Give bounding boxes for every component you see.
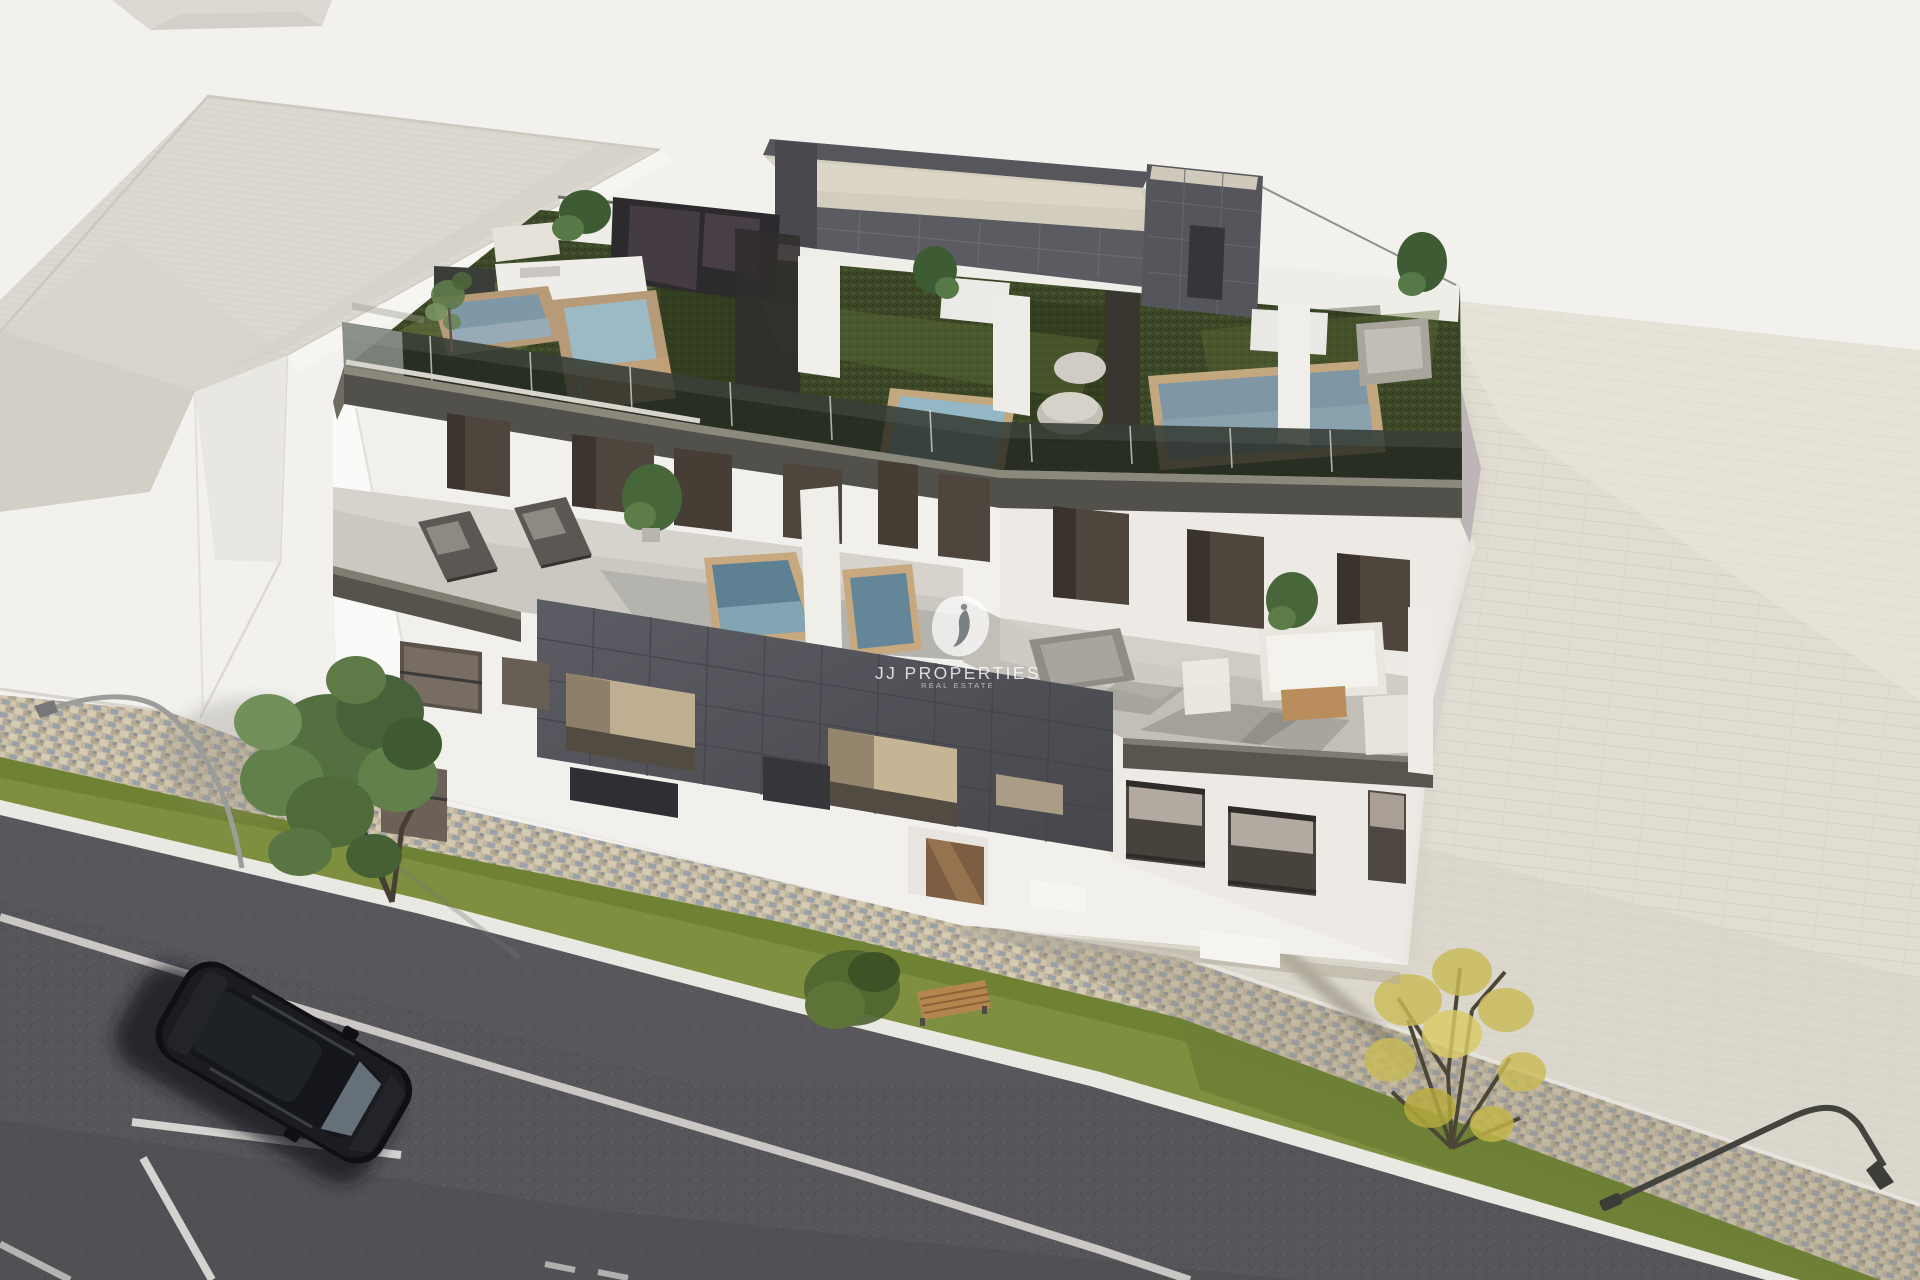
svg-text:REAL ESTATE: REAL ESTATE — [921, 681, 995, 690]
svg-text:JJ PROPERTIES: JJ PROPERTIES — [875, 663, 1041, 683]
